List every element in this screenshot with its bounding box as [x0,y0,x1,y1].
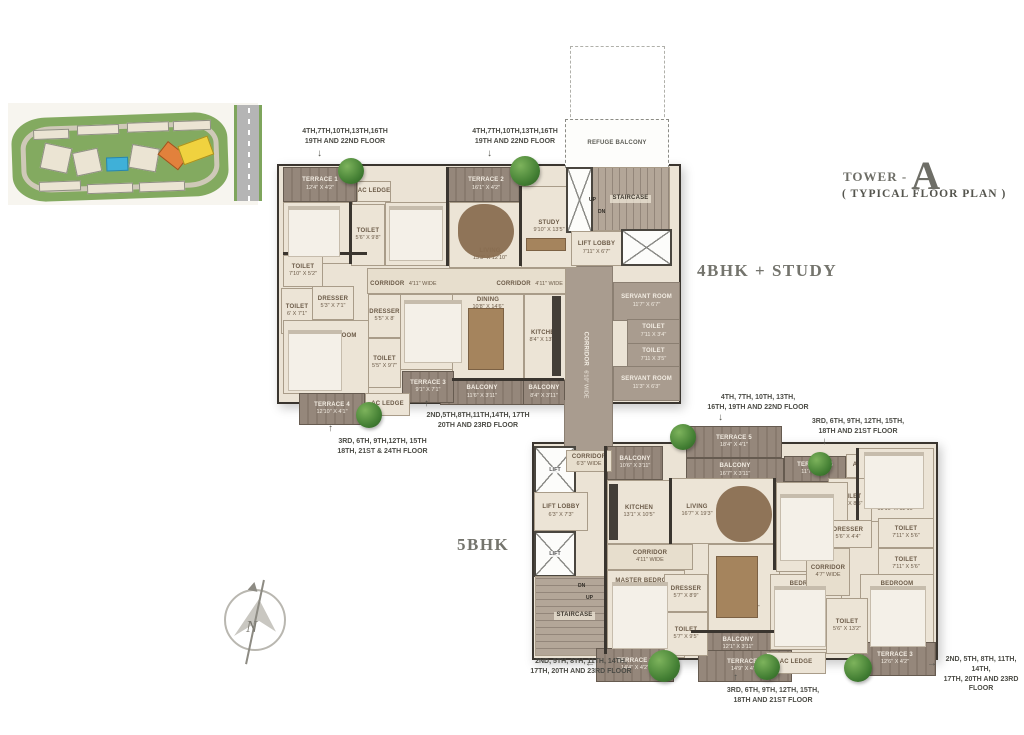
room-label: KITCHEN [625,505,653,513]
left-arrow-icon: ← [585,658,595,669]
room-label: DINING [477,297,499,305]
room-label: REFUGE BALCONY [587,140,646,148]
compass-arrowhead [248,576,261,592]
note-line: 3RD, 6TH, 9TH, 12TH, 15TH, [812,418,904,425]
room-toilet-bed4: TOILET5'5" X 9'7" [368,338,401,388]
floor-note-lower-topright: 3RD, 6TH, 9TH, 12TH, 15TH, 18TH AND 21ST… [778,417,938,437]
room-dims: 5'7" X 9'5" [674,634,699,641]
tree-icon [670,424,696,450]
room-balcony-kitchen: BALCONY8'4" X 3'11" [523,380,565,405]
wall-segment [604,446,607,654]
note-line: 2ND, 5TH, 8TH, 11TH, 14TH, [535,658,627,665]
bed-icon [864,452,924,509]
room-dims: 4'11" WIDE [535,281,563,287]
room-label: CORRIDOR [497,281,531,287]
room-label: DRESSER [318,296,348,304]
room-dims: 7'11 X 3'5" [641,356,667,363]
room-dims: 6'10" WIDE [583,370,589,398]
room-dims: 7'11 X 3'4" [641,332,667,339]
note-line: 19TH AND 22ND FLOOR [475,138,555,145]
room-label: TERRACE 4 [314,402,350,410]
building-block [77,124,119,135]
building-block [173,120,211,131]
up-arrow-icon: ↑ [328,423,333,434]
construction-line [664,46,665,122]
down-arrow-icon: ↓ [317,148,322,159]
down-arrow-icon: ↓ [822,436,827,447]
room-corridor-mid-lower: CORRIDOR4'11" WIDE [607,544,693,570]
note-line: 18TH AND 21ST FLOOR [818,428,897,435]
room-label: DRESSER [833,527,863,535]
sofa-icon [458,204,514,258]
room-balcony-left-lower: BALCONY10'6" X 3'11" [607,446,663,480]
room-toilet-bed2: TOILET5'6" X 9'8" [351,204,385,266]
site-map-thumbnail [8,103,258,205]
room-dims: 7'11" X 6'7" [583,249,611,256]
room-dims: 6'3" X 7'3" [549,512,574,519]
construction-line [570,46,571,122]
room-dims: 6'3" WIDE [576,461,601,468]
wall-segment [691,630,781,633]
room-label: CORRIDOR [572,454,606,462]
building-block [39,180,81,191]
room-servant-1: SERVANT ROOM11'7" X 6'7" [613,282,680,321]
kitchen-counter-icon [609,484,618,540]
note-line: 20TH AND 23RD FLOOR [438,422,518,429]
staircase-up-label: UP [589,197,596,204]
room-label: TOILET [642,348,664,356]
room-dims: 5'6" X 4'4" [836,534,861,541]
bed-icon [780,494,834,561]
room-label: CORRIDOR [583,332,589,366]
room-dims: 12'10" X 4'1" [316,409,347,416]
bed-icon [389,206,443,261]
room-label: LIVING [686,504,707,512]
floor-note-lower-topleft: 4TH, 7TH, 10TH, 13TH, 16TH, 19TH AND 22N… [683,393,833,413]
room-label: BALCONY [619,456,650,464]
room-label: AC LEDGE [358,188,391,196]
room-label: STAIRCASE [610,195,650,203]
building-block [87,183,133,195]
room-label: TOILET [836,619,858,627]
swimming-pool [106,157,128,172]
up-arrow-icon: ↑ [733,672,738,683]
room-label: BALCONY [528,385,559,393]
lift-shaft-icon: LIFT [534,531,576,577]
room-label: LIFT LOBBY [542,504,579,512]
bed-icon [774,586,826,647]
room-label: TOILET [286,304,308,312]
room-label: STUDY [538,220,559,228]
room-dims: 11'7" X 6'7" [633,302,661,309]
room-label: BALCONY [719,463,750,471]
room-dims: 9'1" X 7'1" [416,387,441,394]
site-map-landscape [11,111,230,202]
wall-segment [519,186,522,266]
road-median [248,105,250,201]
floor-note-lower-bottomright: 2ND, 5TH, 8TH, 11TH, 14TH, 17TH, 20TH AN… [938,655,1024,694]
room-toilet-servant1: TOILET7'11 X 3'4" [627,319,680,344]
right-arrow-icon: → [927,658,937,669]
room-corridor-horizontal: CORRIDOR 4'11" WIDE CORRIDOR 4'11" WIDE [367,268,566,294]
room-dims: 11'3" X 6'3" [633,384,661,391]
tree-icon [338,158,364,184]
room-dims: 13'1" X 10'5" [623,512,654,519]
dining-table-icon [468,308,504,370]
room-dims: 5'6" X 13'2" [833,626,861,633]
floor-note-lower-bottommid: 3RD, 6TH, 9TH, 12TH, 15TH, 18TH AND 21ST… [693,686,853,706]
main-road [234,105,262,201]
room-dresser-master: DRESSER5'3" X 7'1" [312,286,354,320]
room-label: BALCONY [722,637,753,645]
wall-segment [446,167,449,266]
dining-table-icon [716,556,758,618]
note-line: 17TH, 20TH AND 23RD FLOOR [530,668,631,675]
note-line: 16TH, 19TH AND 22ND FLOOR [707,404,808,411]
room-dims: 9'10" X 13'5" [533,227,564,234]
room-label: LIFT LOBBY [578,241,615,249]
room-label: TERRACE 5 [716,435,752,443]
floor-note-upper-bottomleft: 3RD, 6TH, 9TH,12TH, 15TH 18TH, 21ST & 24… [300,437,465,457]
room-dims: 10'6" X 3'11" [620,463,651,470]
room-label: STAIRCASE [554,612,594,620]
room-dims: 8'4" X 3'11" [530,393,558,400]
room-dims: 16'1" X 4'2" [472,185,500,192]
note-line: 3RD, 6TH, 9TH, 12TH, 15TH, [727,687,819,694]
wall-segment [452,378,564,381]
room-toilet-master1: TOILET7'10" X 5'2" [283,255,323,287]
wall-segment [669,478,672,544]
note-line: 4TH,7TH,10TH,13TH,16TH [302,128,388,135]
kitchen-counter-icon [552,296,561,376]
construction-line [570,46,665,47]
room-dims: 7'10" X 5'2" [289,271,317,278]
room-label: TOILET [373,356,395,364]
wall-segment [773,478,776,570]
room-label: TOILET [357,228,379,236]
room-toilet-servant2: TOILET7'11 X 3'5" [627,343,680,368]
room-dims: 5'5" X 9'7" [372,363,397,370]
room-dims: 16'7" X 19'3" [681,511,712,518]
room-label: TERRACE 2 [468,177,504,185]
staircase-dn-label: DN [578,583,585,590]
room-staircase-upper: STAIRCASE [591,167,670,231]
room-dims: 5'7" X 8'9" [674,593,699,600]
room-label: TOILET [895,557,917,565]
lift-label: LIFT [547,551,563,557]
note-line: 19TH AND 22ND FLOOR [305,138,385,145]
room-label: CORRIDOR [370,281,404,287]
room-label: TERRACE 3 [877,652,913,660]
note-line: 18TH AND 21ST FLOOR [733,697,812,704]
sofa-icon [716,486,772,542]
room-label: TERRACE 3 [410,380,446,388]
room-label: TOILET [292,264,314,272]
floor-note-upper-topmid: 4TH,7TH,10TH,13TH,16TH 19TH AND 22ND FLO… [440,127,590,147]
room-staircase-lower: STAIRCASE [535,576,614,656]
down-arrow-icon: ↓ [487,148,492,159]
room-label: TERRACE 1 [302,177,338,185]
note-line: 4TH, 7TH, 10TH, 13TH, [721,394,795,401]
room-dims: 6' X 7'1" [287,311,307,318]
tower-building [128,144,160,172]
lift-shaft-icon [621,229,672,266]
room-dims: 12'6" X 4'2" [881,659,909,666]
room-terrace-5: TERRACE 518'4" X 4'1" [686,426,782,458]
lift-label: LIFT [547,467,563,473]
room-dims: 5'6" X 9'8" [356,235,381,242]
tower-prefix: TOWER - [843,169,907,184]
room-dims: 4'11" WIDE [409,281,437,287]
room-label: CORRIDOR [811,565,845,573]
room-lift-lobby-upper: LIFT LOBBY7'11" X 6'7" [571,231,622,266]
room-lift-lobby-lower: LIFT LOBBY6'3" X 7'3" [534,492,588,531]
room-dims: 4'7" WIDE [815,572,840,579]
room-terrace-4: TERRACE 412'10" X 4'1" [299,393,365,425]
staircase-dn-label: DN [598,209,605,216]
compass-north-label: N [246,617,257,637]
down-arrow-icon: ↓ [718,412,723,423]
floor-note-lower-bottomleft: 2ND, 5TH, 8TH, 11TH, 14TH, 17TH, 20TH AN… [506,657,656,677]
room-label: BALCONY [466,385,497,393]
bed-icon [612,582,668,649]
bed-icon [404,300,462,363]
tree-icon [808,452,832,476]
unit-label-5bhk: 5BHK [457,535,509,555]
page-subtitle: ( TYPICAL FLOOR PLAN ) [842,188,1006,200]
bed-icon [870,586,926,647]
building-block [127,121,169,132]
room-toilet-right1: TOILET7'11" X 5'6" [878,518,934,548]
room-dims: 12'4" X 4'2" [306,185,334,192]
study-desk-icon [526,238,566,251]
tree-icon [510,156,540,186]
room-label: TOILET [642,324,664,332]
room-dims: 5'3" X 7'1" [321,303,346,310]
bed-icon [288,206,340,257]
room-dims: 11'6" X 3'11" [467,393,497,400]
room-toilet-master-lower: TOILET5'7" X 9'5" [664,612,708,656]
note-line: 18TH, 21ST & 24TH FLOOR [337,448,427,455]
room-dims: 18'4" X 4'1" [720,442,748,449]
floor-note-upper-topleft: 4TH,7TH,10TH,13TH,16TH 19TH AND 22ND FLO… [270,127,420,147]
floor-note-upper-bottomright: 2ND,5TH,8TH,11TH,14TH, 17TH 20TH AND 23R… [398,411,558,431]
room-dresser-master-lower: DRESSER5'7" X 8'9" [664,574,708,612]
note-line: 2ND,5TH,8TH,11TH,14TH, 17TH [426,412,529,419]
room-label: DRESSER [369,309,399,317]
room-dims: 4'11" WIDE [636,557,664,564]
room-label: SERVANT ROOM [621,376,672,384]
tree-icon [844,654,872,682]
tree-icon [754,654,780,680]
room-toilet-center-lower: TOILET5'6" X 13'2" [826,598,868,654]
room-servant-2: SERVANT ROOM11'3" X 6'3" [613,366,680,401]
bed-icon [288,330,342,391]
room-dresser-2: DRESSER5'5" X 8' [368,294,401,338]
room-ac-ledge: AC LEDGE [357,181,391,202]
wall-segment [856,448,859,520]
tower-building [40,143,73,174]
room-label: CORRIDOR [633,550,667,558]
unit-label-4bhk: 4BHK + STUDY [697,261,837,281]
room-dims: 7'11" X 5'6" [892,533,920,540]
room-label: DRESSER [671,586,701,594]
note-line: 17TH, 20TH AND 23RD FLOOR [944,676,1019,693]
building-block [33,129,69,140]
note-line: 4TH,7TH,10TH,13TH,16TH [472,128,558,135]
note-line: 2ND, 5TH, 8TH, 11TH, 14TH, [946,656,1017,673]
tree-icon [356,402,382,428]
room-dims: 16'7" X 3'11" [720,471,751,478]
staircase-up-label: UP [586,595,593,602]
building-block [139,181,185,193]
up-arrow-icon: ↑ [424,398,429,409]
note-line: 3RD, 6TH, 9TH,12TH, 15TH [338,438,426,445]
compass-icon: N [224,589,286,651]
room-label: SERVANT ROOM [621,294,672,302]
room-dims: 7'11" X 5'6" [892,564,920,571]
room-dims: 5'5" X 8' [375,316,395,323]
room-label: AC LEDGE [780,659,813,667]
room-label: TOILET [895,526,917,534]
